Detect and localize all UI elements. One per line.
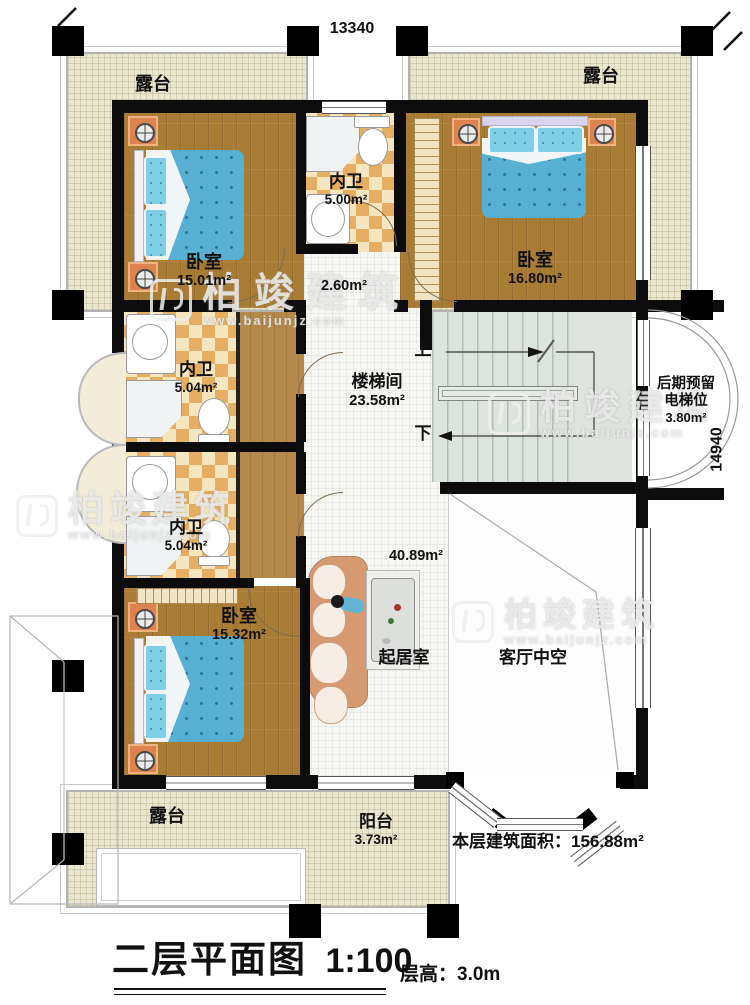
lamp-icon xyxy=(135,123,155,143)
wall xyxy=(454,300,648,312)
void-floor xyxy=(448,490,635,776)
elevator-name-line1: 后期预留 xyxy=(657,376,715,392)
wall xyxy=(112,538,124,788)
room-name: 卧室 xyxy=(186,252,222,272)
wall xyxy=(266,775,318,789)
nightstand xyxy=(128,262,158,292)
bay-window-strip xyxy=(448,782,502,828)
column xyxy=(52,290,84,320)
room-area: 16.80m² xyxy=(488,271,582,288)
wall xyxy=(296,100,306,252)
bed-headboard xyxy=(134,150,144,262)
wall xyxy=(236,452,240,578)
balcony-area: 3.73m² xyxy=(338,832,414,848)
column xyxy=(289,904,321,938)
toilet-tank xyxy=(354,116,390,128)
window xyxy=(166,776,266,790)
void-label: 客厅中空 xyxy=(474,648,592,668)
bay-post xyxy=(616,772,634,788)
bedroom-top-left-label: 卧室 15.01m² xyxy=(158,252,250,290)
bow-window xyxy=(76,444,126,544)
vestibule-mid-floor xyxy=(238,312,304,442)
bath-top-label: 内卫 5.00m² xyxy=(316,172,376,208)
flower-decor xyxy=(388,618,394,624)
floor-area-value: 156.88m² xyxy=(571,832,644,851)
terrace-top-left-label: 露台 xyxy=(118,74,188,95)
closet xyxy=(136,588,238,604)
sofa-cushion xyxy=(310,642,348,684)
room-area: 23.58m² xyxy=(312,392,442,410)
column xyxy=(427,904,459,938)
room-area: 5.04m² xyxy=(166,380,226,396)
balcony-name: 阳台 xyxy=(359,812,393,831)
window xyxy=(635,528,651,708)
room-area: 5.00m² xyxy=(316,192,376,208)
room-name: 内卫 xyxy=(169,518,203,537)
wall xyxy=(296,394,306,442)
stairs-landing xyxy=(574,312,632,482)
pillow xyxy=(536,126,584,154)
bed-headboard xyxy=(134,638,144,744)
bath-mid-label: 内卫 5.04m² xyxy=(166,360,226,396)
elevator-name-line2: 电梯位 xyxy=(664,393,708,409)
sink xyxy=(132,324,168,360)
bow-window xyxy=(78,352,126,446)
column xyxy=(52,26,84,56)
lamp-icon xyxy=(135,609,155,629)
wall xyxy=(296,244,358,254)
bedroom-top-right-label: 卧室 16.80m² xyxy=(488,250,582,288)
wall xyxy=(296,452,306,494)
window xyxy=(635,146,651,280)
dimension-right: 14940 xyxy=(709,409,728,489)
balcony-label: 阳台 3.73m² xyxy=(338,812,414,848)
hall-area-label: 2.60m² xyxy=(306,278,382,295)
person-head xyxy=(331,595,344,608)
wall xyxy=(284,300,306,312)
sink xyxy=(132,464,168,500)
title-underline xyxy=(114,988,386,995)
living-name-label: 起居室 xyxy=(366,648,442,668)
bed-headboard xyxy=(482,116,588,126)
stairs-up-label: 上 xyxy=(412,340,434,360)
pillow xyxy=(144,208,168,258)
lamp-icon xyxy=(458,124,478,144)
nightstand xyxy=(128,744,158,774)
column xyxy=(287,26,319,56)
wall xyxy=(440,482,648,494)
room-area: 15.32m² xyxy=(192,627,286,644)
room-name: 楼梯间 xyxy=(352,372,403,391)
pillow xyxy=(144,692,168,740)
sofa-cushion xyxy=(314,686,348,724)
floor-plan-page: 柏竣建筑 www.baijunjz.com 柏竣建筑 www.baijunjz.… xyxy=(0,0,750,1005)
stairwell-label: 楼梯间 23.58m² xyxy=(312,372,442,410)
column xyxy=(52,833,84,865)
column xyxy=(52,660,84,692)
lamp-icon xyxy=(135,751,155,771)
wall xyxy=(394,300,408,312)
vestibule-low-floor xyxy=(238,452,304,578)
wall xyxy=(112,775,166,789)
plate-decor xyxy=(382,638,391,644)
nightstand xyxy=(588,118,616,146)
floor-area-note: 本层建筑面积：156.88m² xyxy=(452,832,702,852)
bath-low-label: 内卫 5.04m² xyxy=(156,518,216,554)
toilet-bowl xyxy=(358,128,388,166)
wall xyxy=(112,300,232,312)
wall xyxy=(394,100,406,252)
floor-height-note: 层高：3.0m xyxy=(400,964,530,986)
room-name: 内卫 xyxy=(179,360,213,379)
bay-window-strip xyxy=(497,818,583,831)
wall xyxy=(300,586,310,776)
column xyxy=(681,26,713,56)
watermark-logo-icon xyxy=(16,495,58,537)
wall xyxy=(236,312,240,442)
living-area-label: 40.89m² xyxy=(374,548,458,565)
wall xyxy=(648,488,724,500)
nightstand xyxy=(128,116,158,146)
wall xyxy=(296,536,306,578)
lamp-icon xyxy=(135,269,155,289)
room-area: 15.01m² xyxy=(158,273,250,290)
toilet-bowl xyxy=(198,398,230,436)
room-area: 5.04m² xyxy=(156,538,216,554)
wall xyxy=(112,100,124,353)
room-name: 卧室 xyxy=(517,250,553,270)
terrace-top-right-label: 露台 xyxy=(566,66,636,87)
pillow xyxy=(488,126,536,154)
lamp-icon xyxy=(594,124,614,144)
bedroom-bottom-label: 卧室 15.32m² xyxy=(192,606,286,644)
floor-area-label: 本层建筑面积： xyxy=(452,832,571,851)
wall xyxy=(296,312,306,354)
wall xyxy=(112,578,254,588)
balcony-door-window xyxy=(318,776,414,790)
room-name: 内卫 xyxy=(329,172,363,191)
lower-roof-rect xyxy=(96,848,306,906)
flower-decor xyxy=(394,604,401,611)
toilet-tank xyxy=(198,556,230,566)
terrace-bottom-label: 露台 xyxy=(132,806,202,827)
pillow xyxy=(144,156,168,206)
pillow xyxy=(144,644,168,692)
column xyxy=(396,26,428,56)
sofa-cushion xyxy=(312,564,346,600)
room-name: 卧室 xyxy=(221,606,257,626)
stairs-rail xyxy=(438,386,578,401)
drawing-title-name: 二层平面图 xyxy=(112,939,307,980)
nightstand xyxy=(128,602,158,632)
nightstand xyxy=(452,118,480,146)
wall xyxy=(112,442,304,452)
window xyxy=(322,101,386,114)
dimension-top: 13340 xyxy=(318,20,386,39)
column xyxy=(681,290,713,320)
stairs-down-label: 下 xyxy=(412,424,434,444)
